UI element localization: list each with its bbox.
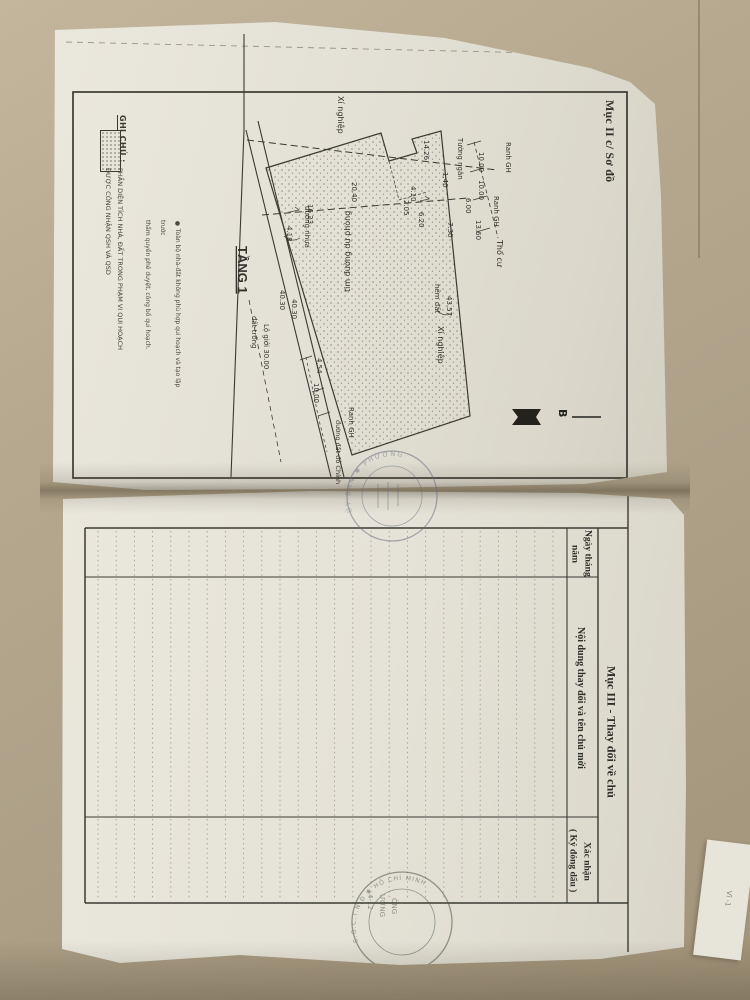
- ruled-lines: [98, 531, 553, 900]
- corner-document: Vĩ -1: [693, 840, 750, 961]
- svg-text:S.G.C.T.N.Đ ✱ HỒ CHÍ MINH: S.G.C.T.N.Đ ✱ HỒ CHÍ MINH: [350, 875, 427, 944]
- residential-label: Thổ cư: [495, 239, 505, 268]
- dim-label: 4.54: [315, 358, 323, 374]
- column-header-date: Ngày tháng năm: [565, 529, 596, 578]
- photo-background: B TẦNG 1 14.26 20.40 16.23 4.18 40.30 40…: [0, 0, 750, 1000]
- factory-label: Xí nghiệp: [336, 96, 346, 134]
- bottom-shade: [0, 940, 750, 1000]
- round-stamp-rim-text: S.G.C.T.N.Đ ✱ HỒ CHÍ MINH: [350, 875, 427, 944]
- vacant-land-label: đất trống: [250, 316, 258, 349]
- column-header-confirm: Xác nhận ( Ký đóng dấu ): [563, 818, 596, 904]
- fold-stamp-marks: [378, 482, 398, 510]
- dim-label: 10.00: [312, 383, 320, 403]
- fold-stamp-rim-text: ỦY BAN ✱ PHƯỜNG: [343, 449, 405, 514]
- col-date-line2: năm: [568, 530, 581, 577]
- dim-label: 10.00: [477, 152, 485, 172]
- dirt-alley-label: hẻm đất: [433, 284, 441, 314]
- dim-label: 14.26: [422, 140, 430, 161]
- factory-label: Xí nghiệp: [436, 326, 446, 364]
- dim-label: 13.60: [474, 220, 482, 240]
- svg-text:ỦY BAN ✱ PHƯỜNG: ỦY BAN ✱ PHƯỜNG: [343, 449, 405, 514]
- round-stamp-text: ÒNG: [390, 898, 399, 914]
- page2-sheet: S.G.C.T.N.Đ ✱ HỒ CHÍ MINH ƯỞNG ÒNG 4-12 …: [60, 487, 688, 979]
- col-confirm-line1: Xác nhận: [580, 829, 594, 892]
- boundary-label: Ranh GH: [347, 407, 355, 438]
- page1-sheet: B TẦNG 1 14.26 20.40 16.23 4.18 40.30 40…: [45, 16, 675, 494]
- legend-caption-line1: PHẦN DIỆN TÍCH NHÀ, ĐẤT TRONG PHẠM VI QU…: [114, 168, 126, 363]
- dim-label: 1.40: [441, 172, 449, 188]
- dim-label: 10.00: [477, 180, 485, 200]
- round-stamp-text: ƯỞNG: [378, 894, 388, 917]
- note-line1: ● Toàn bộ nhà-đất không phù hợp qui hoạc…: [155, 220, 185, 388]
- col-date-line1: Ngày tháng: [581, 530, 594, 577]
- legend-swatch: [100, 130, 121, 172]
- dim-label: 40.30: [290, 299, 298, 319]
- dim-label: 2.05: [402, 200, 410, 216]
- paper-fold-line: [66, 42, 540, 53]
- fold-stamp: ỦY BAN ✱ PHƯỜNG: [336, 440, 448, 552]
- section2-title: Mục II c/ Sơ đồ: [602, 100, 617, 220]
- table-grid: [85, 496, 628, 952]
- floor-label: TẦNG 1: [235, 246, 250, 294]
- note-line2: thẩm quyền phê duyệt, công bố qui hoạch.: [140, 220, 155, 388]
- north-label: B: [556, 409, 569, 417]
- dim-label: 6.20: [417, 212, 425, 228]
- table-seam: [698, 0, 700, 258]
- section3-title: Mục III - Thay đổi về chủ: [597, 600, 625, 864]
- dim-label: 7.30: [446, 222, 454, 238]
- dim-label: 6.00: [464, 198, 472, 214]
- dim-label: 43.57: [445, 296, 453, 316]
- boundary-label: Ranh GH: [492, 196, 500, 227]
- asphalt-road-label: đường nhựa: [303, 206, 311, 248]
- legend-caption-line2: ĐƯỢC CÔNG NHẬN QSH VÀ QSD: [102, 168, 114, 363]
- round-stamp-text: 4-12: [366, 894, 374, 910]
- dim-label: 40.30: [278, 290, 286, 310]
- corner-note: Vĩ -1: [723, 890, 733, 907]
- col-confirm-line2: ( Ký đóng dấu ): [566, 829, 580, 892]
- road-boundary-label: Lộ giới 30.00: [262, 324, 270, 369]
- planned-road-label: tim đường dự phòng: [342, 211, 353, 292]
- dim-label: 4.18: [285, 226, 293, 242]
- note-text: ● Toàn bộ nhà-đất không phù hợp qui hoạc…: [140, 220, 185, 388]
- column-header-content: Nội dung thay đổi và tên chủ mới: [565, 578, 596, 817]
- dim-label: 20.40: [350, 182, 358, 202]
- boundary-label: Ranh GH: [504, 142, 512, 173]
- legend-caption: PHẦN DIỆN TÍCH NHÀ, ĐẤT TRONG PHẠM VI QU…: [102, 168, 126, 363]
- partition-wall-label: Tường ngăn: [456, 137, 464, 180]
